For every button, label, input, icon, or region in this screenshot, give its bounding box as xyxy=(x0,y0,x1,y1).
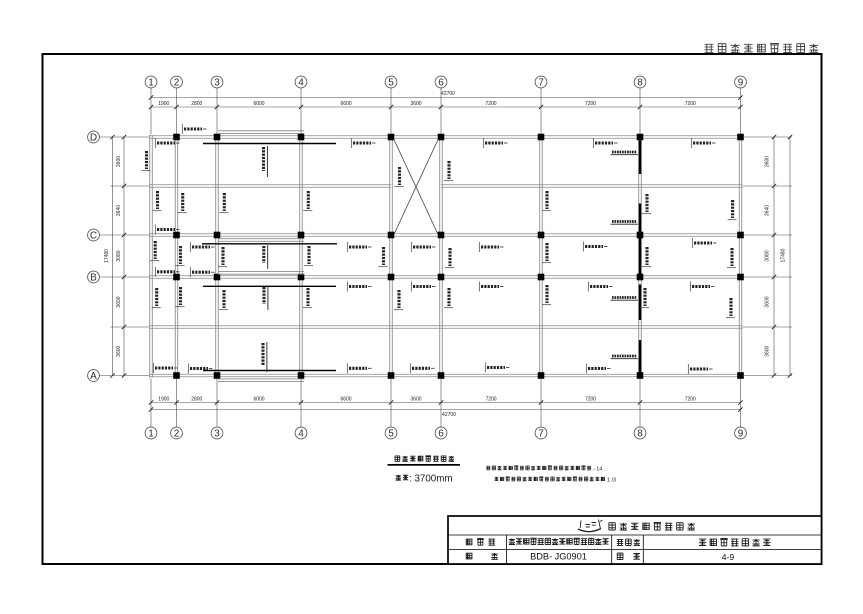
svg-text:D: D xyxy=(90,133,97,144)
svg-text:3: 3 xyxy=(214,429,220,440)
svg-text:9: 9 xyxy=(738,78,744,89)
svg-text:8: 8 xyxy=(637,78,643,89)
svg-text:C: C xyxy=(90,231,97,242)
svg-text:4: 4 xyxy=(298,78,304,89)
svg-text:B: B xyxy=(90,273,97,284)
svg-text:6600: 6600 xyxy=(340,397,351,403)
svg-text:9: 9 xyxy=(738,429,744,440)
svg-text:2: 2 xyxy=(174,429,180,440)
svg-text:3600: 3600 xyxy=(116,296,122,307)
svg-text:17480: 17480 xyxy=(781,248,787,262)
svg-text:3600: 3600 xyxy=(116,345,122,356)
svg-text:6000: 6000 xyxy=(253,397,264,403)
svg-text:42700: 42700 xyxy=(442,412,456,418)
svg-text:3080: 3080 xyxy=(765,250,771,261)
svg-text:5: 5 xyxy=(388,429,394,440)
svg-text:7200: 7200 xyxy=(685,101,696,107)
svg-text:7200: 7200 xyxy=(485,397,496,403)
svg-text:5: 5 xyxy=(388,78,394,89)
svg-text:42700: 42700 xyxy=(441,91,455,97)
svg-text:3600: 3600 xyxy=(765,296,771,307)
svg-text:- 14 .: - 14 . xyxy=(593,466,605,472)
svg-text:BDB- JG0901: BDB- JG0901 xyxy=(530,552,587,562)
svg-text:7200: 7200 xyxy=(585,397,596,403)
svg-text:4-9: 4-9 xyxy=(722,552,735,562)
svg-text:3600: 3600 xyxy=(116,156,122,167)
svg-text:6: 6 xyxy=(438,429,444,440)
svg-text:2800: 2800 xyxy=(191,101,202,107)
svg-text:7: 7 xyxy=(538,78,544,89)
svg-text:3600: 3600 xyxy=(765,345,771,356)
svg-text:7200: 7200 xyxy=(685,397,696,403)
svg-text:7200: 7200 xyxy=(485,101,496,107)
svg-text:6: 6 xyxy=(438,78,444,89)
svg-text:1900: 1900 xyxy=(158,397,169,403)
svg-text:1900: 1900 xyxy=(158,101,169,107)
svg-text:3600: 3600 xyxy=(765,156,771,167)
svg-text:1 /3: 1 /3 xyxy=(607,477,616,483)
svg-text:2800: 2800 xyxy=(191,397,202,403)
svg-text:4: 4 xyxy=(298,429,304,440)
svg-text:7200: 7200 xyxy=(585,101,596,107)
svg-text:3080: 3080 xyxy=(116,250,122,261)
svg-text:8: 8 xyxy=(637,429,643,440)
svg-text:3640: 3640 xyxy=(765,205,771,216)
svg-text:3: 3 xyxy=(214,78,220,89)
svg-text:3600: 3600 xyxy=(410,397,421,403)
svg-text:A: A xyxy=(90,371,97,382)
svg-text:1: 1 xyxy=(148,429,154,440)
svg-text:7: 7 xyxy=(538,429,544,440)
svg-text:1: 1 xyxy=(148,78,154,89)
svg-text:17480: 17480 xyxy=(104,249,110,263)
svg-text:: 3700mm: : 3700mm xyxy=(409,473,453,484)
svg-text:3640: 3640 xyxy=(116,205,122,216)
svg-text:2: 2 xyxy=(174,78,180,89)
svg-text:3600: 3600 xyxy=(410,101,421,107)
svg-text:6000: 6000 xyxy=(253,101,264,107)
svg-text:6600: 6600 xyxy=(340,101,351,107)
